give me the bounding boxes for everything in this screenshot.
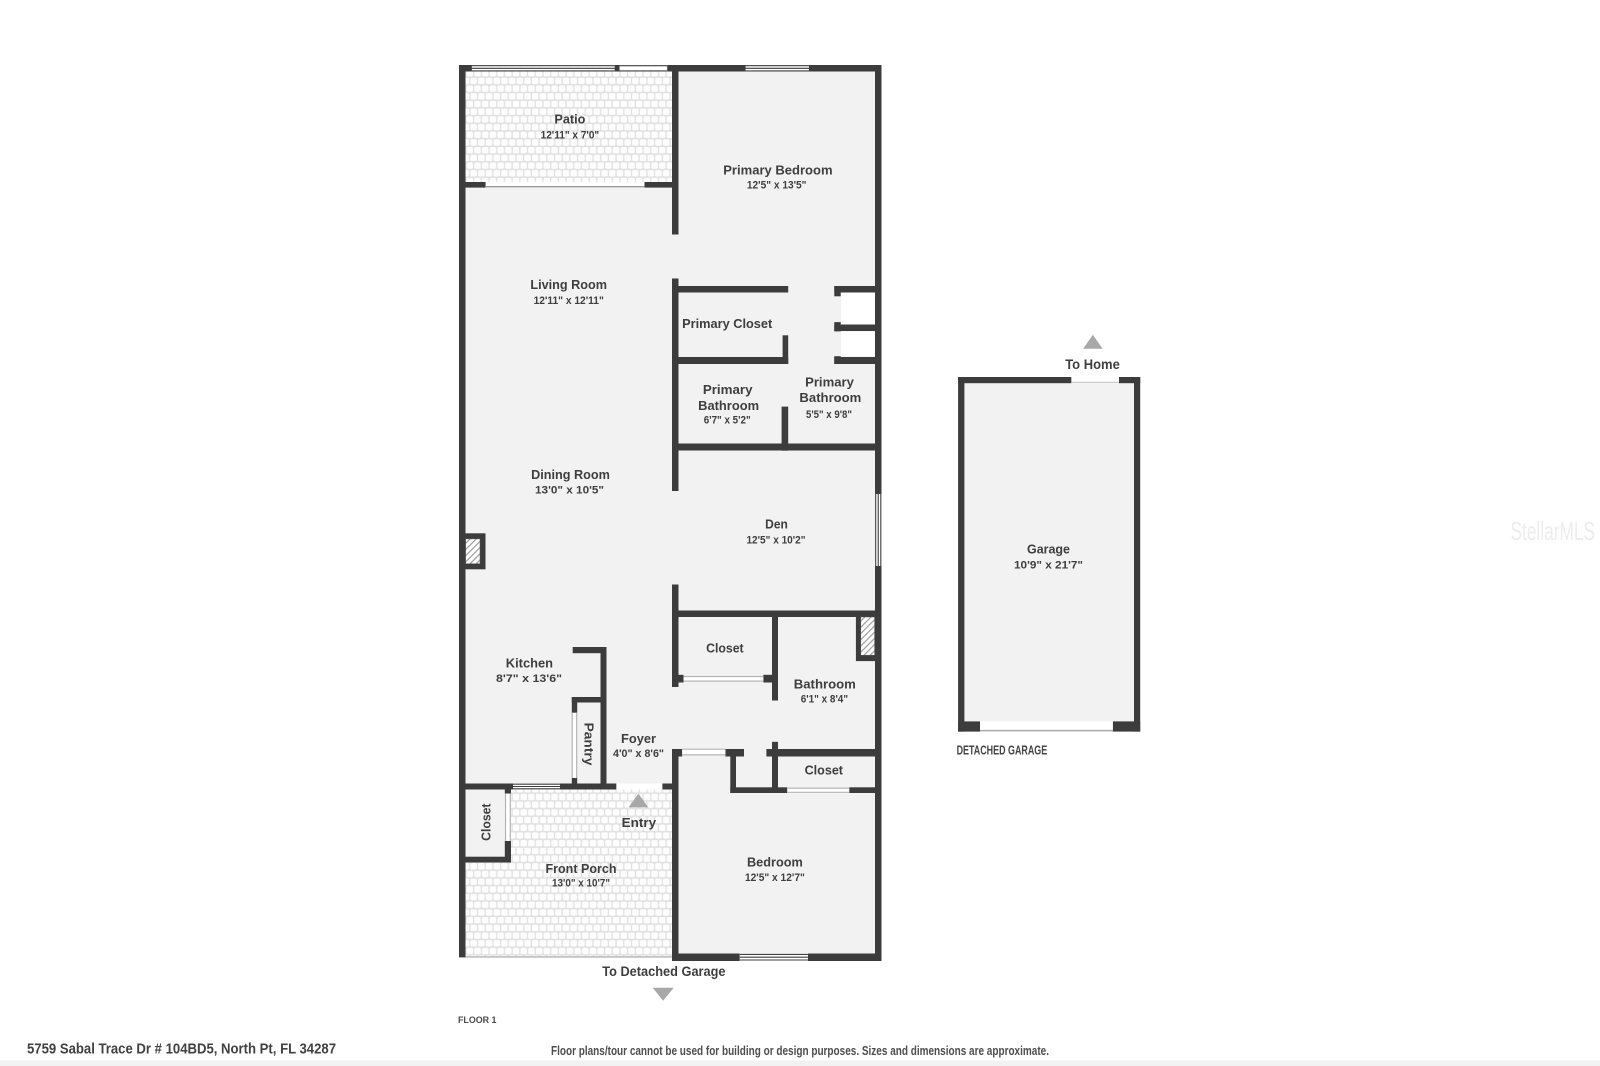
svg-text:8'7" x 13'6": 8'7" x 13'6" [496,673,562,685]
svg-text:Pantry: Pantry [582,723,597,767]
svg-text:StellarMLS: StellarMLS [1511,516,1596,546]
svg-text:Primary: Primary [805,374,855,389]
svg-text:FLOOR 1: FLOOR 1 [458,1015,497,1026]
svg-text:Dining Room: Dining Room [531,467,610,482]
svg-text:Closet: Closet [805,762,844,777]
svg-text:Bedroom: Bedroom [747,855,803,870]
svg-text:Garage: Garage [1027,542,1070,557]
svg-text:Primary Bedroom: Primary Bedroom [723,162,832,177]
svg-text:13'0" x 10'7": 13'0" x 10'7" [552,877,610,889]
svg-text:Floor plans/tour cannot be use: Floor plans/tour cannot be used for buil… [551,1044,1049,1058]
svg-text:Bathroom: Bathroom [794,676,856,691]
svg-text:Primary Closet: Primary Closet [682,316,773,331]
svg-text:12'11" x 12'11": 12'11" x 12'11" [534,295,604,307]
svg-text:5'5" x 9'8": 5'5" x 9'8" [806,409,852,421]
svg-text:Kitchen: Kitchen [506,656,553,671]
svg-text:6'7" x 5'2": 6'7" x 5'2" [704,414,751,426]
svg-text:Den: Den [765,517,788,532]
svg-text:Bathroom: Bathroom [799,390,861,405]
svg-text:4'0" x 8'6": 4'0" x 8'6" [613,748,664,760]
svg-text:Closet: Closet [706,640,744,655]
svg-text:12'5" x 10'2": 12'5" x 10'2" [746,535,805,547]
svg-text:Patio: Patio [554,112,585,127]
svg-text:Primary: Primary [703,382,753,397]
svg-text:10'9" x 21'7": 10'9" x 21'7" [1014,560,1083,572]
svg-text:5759 Sabal Trace Dr # 104BD5,: 5759 Sabal Trace Dr # 104BD5, North Pt, … [27,1041,336,1058]
svg-text:Foyer: Foyer [621,731,656,746]
svg-text:6'1" x 8'4": 6'1" x 8'4" [801,694,848,706]
svg-text:To Detached Garage: To Detached Garage [602,964,726,979]
svg-text:Bathroom: Bathroom [698,398,759,413]
svg-text:DETACHED GARAGE: DETACHED GARAGE [957,744,1048,758]
svg-text:12'5" x 12'7": 12'5" x 12'7" [745,872,805,884]
svg-text:Entry: Entry [622,815,657,830]
svg-text:13'0" x 10'5": 13'0" x 10'5" [535,484,604,496]
svg-text:Front Porch: Front Porch [546,861,617,876]
svg-text:Closet: Closet [479,803,494,841]
svg-text:12'11" x 7'0": 12'11" x 7'0" [541,129,600,141]
svg-text:12'5" x 13'5": 12'5" x 13'5" [747,179,807,191]
svg-text:To Home: To Home [1065,357,1120,372]
svg-text:Living Room: Living Room [530,277,607,292]
